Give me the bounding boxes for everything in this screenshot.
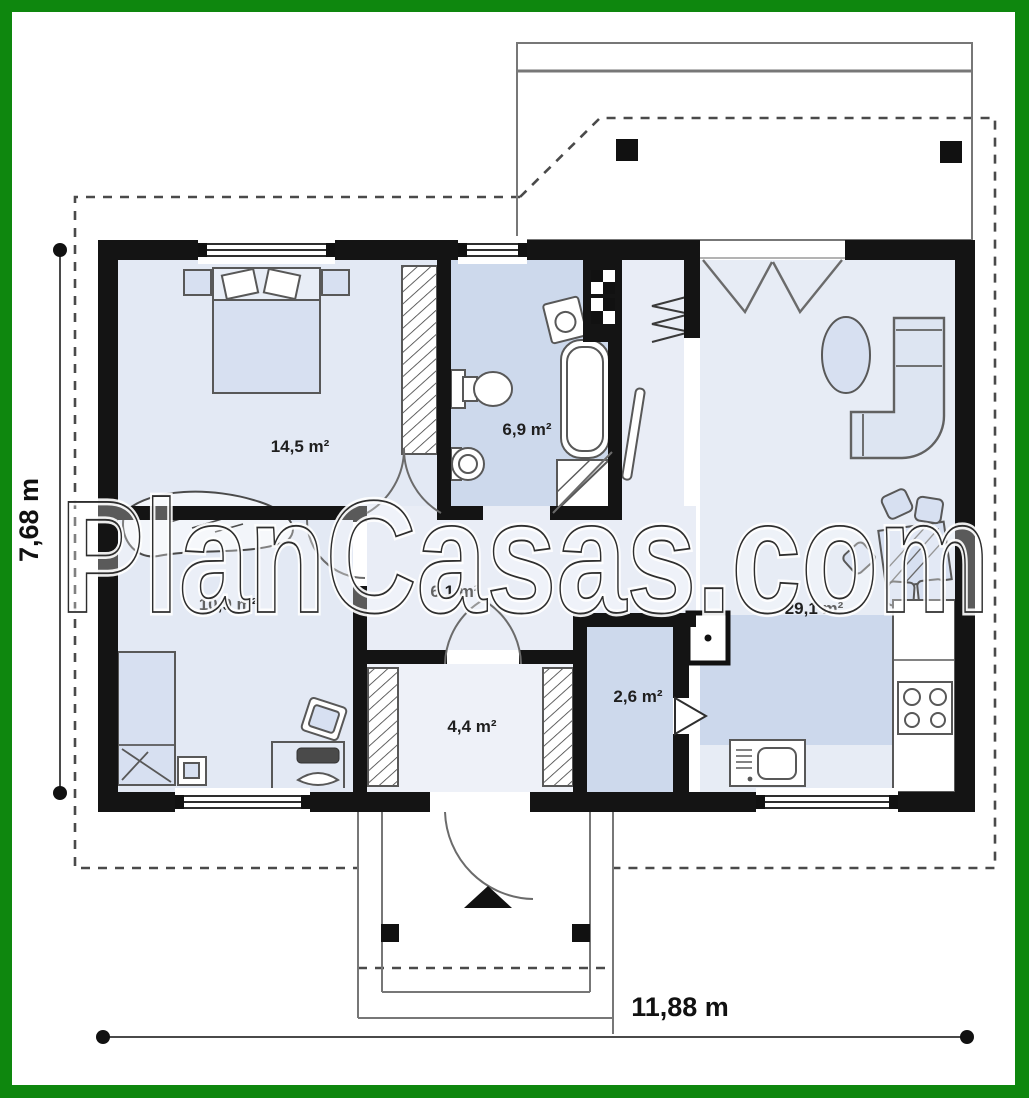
height-dimension-label: 7,68 m	[14, 478, 44, 562]
oval-table	[822, 317, 870, 393]
wardrobe	[543, 668, 573, 786]
window	[175, 788, 310, 816]
pillow	[264, 269, 300, 299]
window	[198, 236, 335, 264]
watermark-text: PlanCasas.com	[60, 467, 990, 646]
room-area-label: 14,5 m²	[271, 437, 330, 456]
floor-plan-svg: 14,5 m² 6,9 m² 10,9 m² 6,1 m² 29,1 m² 2,…	[0, 0, 1029, 1098]
wardrobe	[368, 668, 398, 786]
toilet	[474, 372, 512, 406]
stove	[898, 682, 952, 734]
keyboard	[297, 748, 339, 763]
room-area-label: 4,4 m²	[447, 717, 496, 736]
entrance-opening	[430, 794, 530, 810]
width-dimension-label: 11,88 m	[631, 992, 729, 1022]
terrace-column	[616, 139, 638, 161]
nightstand	[322, 270, 349, 295]
room-area-label: 6,9 m²	[502, 420, 551, 439]
wardrobe	[402, 266, 437, 454]
porch-column	[572, 924, 590, 942]
floor-plan-page: 14,5 m² 6,9 m² 10,9 m² 6,1 m² 29,1 m² 2,…	[0, 0, 1029, 1098]
nightstand	[184, 270, 211, 295]
terrace-column	[940, 141, 962, 163]
watermark: PlanCasas.com PlanCasas.com	[60, 467, 990, 646]
window	[458, 236, 527, 264]
window	[756, 788, 898, 816]
porch-column	[381, 924, 399, 942]
room-area-label: 2,6 m²	[613, 687, 662, 706]
room-storage	[587, 627, 673, 792]
pillow	[222, 269, 258, 299]
